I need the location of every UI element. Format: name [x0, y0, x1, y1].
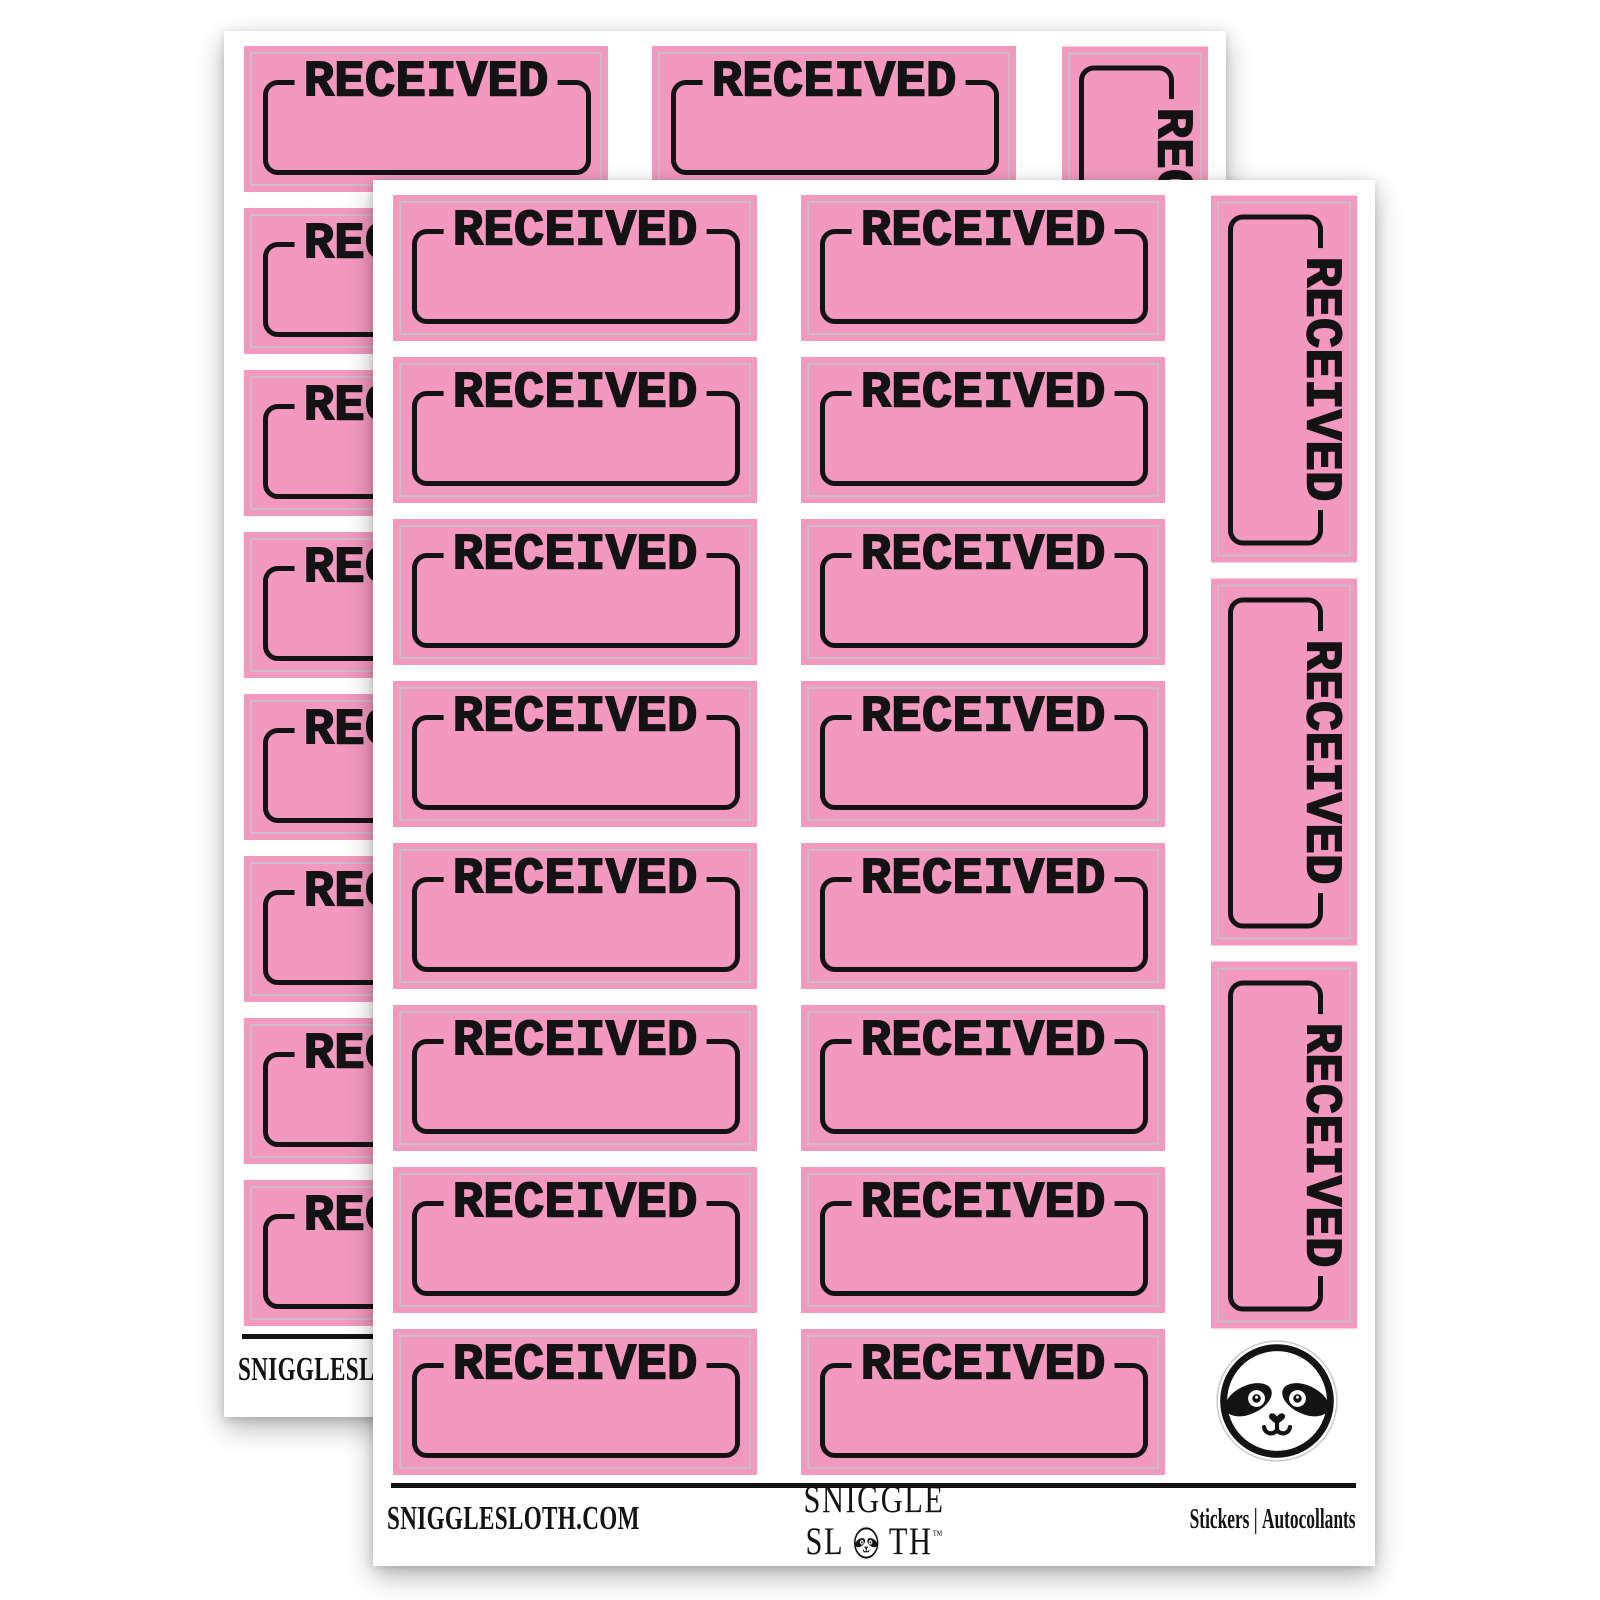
sticker-label: RECEIVED	[444, 689, 707, 746]
sticker-label: RECEIVED	[852, 851, 1115, 908]
brand-wordmark-sl: SL	[806, 1520, 844, 1563]
received-sticker-vertical: RECEIVED	[1211, 578, 1357, 945]
sticker-face: RECEIVED	[652, 46, 1016, 192]
sticker-label: RECEIVED	[444, 1013, 707, 1070]
sticker-face: RECEIVED	[393, 1167, 757, 1313]
received-sticker-horizontal: RECEIVED	[801, 1167, 1165, 1313]
sticker-label: RECEIVED	[852, 1013, 1115, 1070]
sticker-face: RECEIVED	[801, 681, 1165, 827]
sticker-column-vertical: RECEIVEDRECEIVEDRECEIVED	[1211, 195, 1357, 1344]
sticker-face: RECEIVED	[801, 843, 1165, 989]
received-sticker-horizontal: RECEIVED	[393, 195, 757, 341]
sticker-face: RECEIVED	[393, 357, 757, 503]
sticker-label: RECEIVED	[852, 1337, 1115, 1394]
sticker-sheet-front: RECEIVEDRECEIVEDRECEIVEDRECEIVEDRECEIVED…	[373, 180, 1375, 1566]
sticker-label: RECEIVED	[852, 203, 1115, 260]
sticker-label: RECEIVED	[295, 54, 558, 111]
brand-wordmark-line2: SL TH™	[483, 1517, 1265, 1560]
received-sticker-horizontal: RECEIVED	[393, 1167, 757, 1313]
sloth-face-icon	[1215, 1339, 1339, 1463]
brand-wordmark-th: TH	[889, 1520, 933, 1563]
sticker-label: RECEIVED	[852, 527, 1115, 584]
sticker-label: RECEIVED	[852, 689, 1115, 746]
received-sticker-horizontal: RECEIVED	[393, 1329, 757, 1475]
sticker-face: RECEIVED	[393, 519, 757, 665]
sticker-label: RECEIVED	[444, 1175, 707, 1232]
sticker-label: RECEIVED	[1292, 1013, 1349, 1276]
received-sticker-horizontal: RECEIVED	[393, 357, 757, 503]
received-sticker-horizontal: RECEIVED	[393, 519, 757, 665]
sticker-label: RECEIVED	[444, 365, 707, 422]
sticker-face: RECEIVED	[801, 519, 1165, 665]
received-sticker-horizontal: RECEIVED	[801, 195, 1165, 341]
sticker-label: RECEIVED	[444, 1337, 707, 1394]
received-sticker-horizontal: RECEIVED	[801, 1329, 1165, 1475]
sticker-face: RECEIVED	[801, 1005, 1165, 1151]
brand-wordmark-line1: SNIGGLE	[483, 1482, 1265, 1517]
received-sticker-horizontal: RECEIVED	[801, 1005, 1165, 1151]
sticker-label: RECEIVED	[1292, 247, 1349, 510]
sticker-face: RECEIVED	[801, 357, 1165, 503]
sticker-face: RECEIVED	[1211, 578, 1357, 945]
received-sticker-horizontal: RECEIVED	[393, 681, 757, 827]
received-sticker-horizontal: RECEIVED	[801, 357, 1165, 503]
sticker-face: RECEIVED	[801, 195, 1165, 341]
sticker-column-middle: RECEIVEDRECEIVEDRECEIVEDRECEIVEDRECEIVED…	[801, 195, 1165, 1491]
brand-wordmark: SNIGGLE SL TH™	[483, 1482, 1265, 1560]
sloth-face-badge	[1215, 1339, 1339, 1463]
received-sticker-vertical: RECEIVED	[1211, 961, 1357, 1328]
product-type-fr: Autocollants	[1262, 1504, 1356, 1535]
sticker-face: RECEIVED	[1211, 195, 1357, 562]
received-sticker-vertical: RECEIVED	[1211, 195, 1357, 562]
received-sticker-horizontal: RECEIVED	[393, 843, 757, 989]
sticker-face: RECEIVED	[1211, 961, 1357, 1328]
received-sticker-horizontal: RECEIVED	[801, 843, 1165, 989]
sloth-face-icon	[853, 1526, 880, 1560]
sticker-face: RECEIVED	[393, 1329, 757, 1475]
sticker-label: RECEIVED	[444, 851, 707, 908]
sticker-label: RECEIVED	[1292, 630, 1349, 893]
sticker-face: RECEIVED	[801, 1167, 1165, 1313]
sticker-face: RECEIVED	[393, 843, 757, 989]
product-type-en: Stickers	[1190, 1504, 1250, 1535]
received-sticker-horizontal: RECEIVED	[652, 46, 1016, 192]
sticker-label: RECEIVED	[852, 1175, 1115, 1232]
sloth-face-icon	[843, 1520, 889, 1563]
sticker-face: RECEIVED	[393, 195, 757, 341]
received-sticker-horizontal: RECEIVED	[801, 681, 1165, 827]
sticker-label: RECEIVED	[444, 203, 707, 260]
received-sticker-horizontal: RECEIVED	[801, 519, 1165, 665]
received-sticker-horizontal: RECEIVED	[244, 46, 608, 192]
product-image: RECEIVEDRECEIVEDRECEIVEDRECEIVEDRECEIVED…	[0, 0, 1600, 1600]
product-type-label: Stickers|Autocollants	[1190, 1504, 1356, 1536]
sticker-face: RECEIVED	[244, 46, 608, 192]
received-sticker-horizontal: RECEIVED	[393, 1005, 757, 1151]
sticker-label: RECEIVED	[852, 365, 1115, 422]
product-type-separator: |	[1254, 1504, 1258, 1535]
sticker-face: RECEIVED	[393, 1005, 757, 1151]
sticker-label: RECEIVED	[703, 54, 966, 111]
trademark-symbol: ™	[933, 1527, 943, 1542]
sticker-face: RECEIVED	[393, 681, 757, 827]
sticker-face: RECEIVED	[801, 1329, 1165, 1475]
sticker-column-left: RECEIVEDRECEIVEDRECEIVEDRECEIVEDRECEIVED…	[393, 195, 757, 1491]
sticker-label: RECEIVED	[444, 527, 707, 584]
